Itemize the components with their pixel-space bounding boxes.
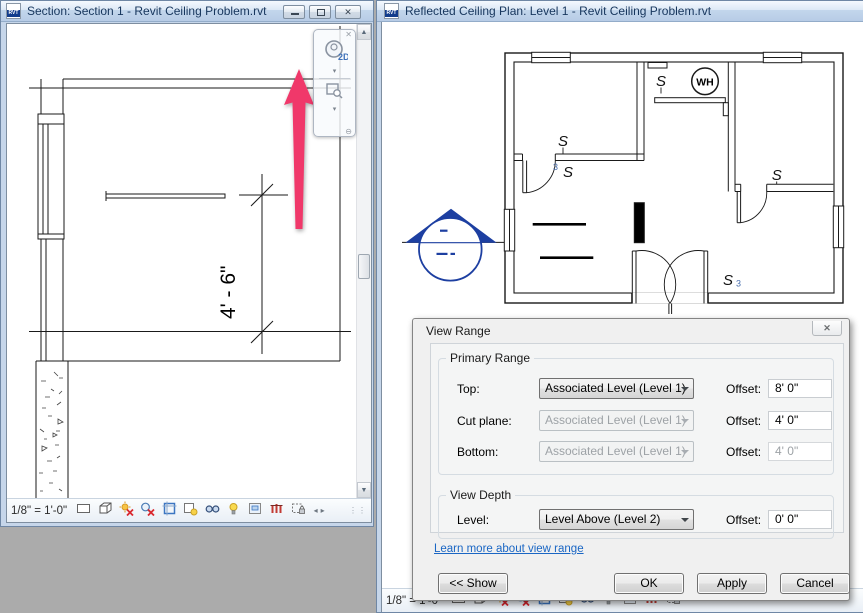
restore-icon bbox=[317, 9, 325, 16]
navigation-bar[interactable]: ✕ 2D ▾ ▾ ⊖ bbox=[313, 29, 356, 137]
apply-button[interactable]: Apply bbox=[697, 573, 767, 594]
desktop: RVT Section: Section 1 - Revit Ceiling P… bbox=[0, 0, 863, 613]
rvt-file-icon: RVT bbox=[384, 3, 399, 19]
section-window-detail[interactable] bbox=[38, 114, 64, 239]
fixture-line-1[interactable] bbox=[533, 223, 586, 226]
water-heater-label: WH bbox=[696, 77, 714, 89]
minimize-icon bbox=[291, 13, 299, 15]
vertical-scrollbar[interactable]: ▲ ▼ bbox=[356, 24, 371, 498]
worksharing-display-icon[interactable] bbox=[268, 500, 285, 517]
section-window-titlebar[interactable]: RVT Section: Section 1 - Revit Ceiling P… bbox=[1, 1, 373, 22]
view-depth-level-select[interactable]: Level Above (Level 2) bbox=[539, 509, 694, 530]
ok-button[interactable]: OK bbox=[614, 573, 684, 594]
top-offset-label: Offset: bbox=[726, 382, 761, 396]
zoom-menu-caret[interactable]: ▾ bbox=[314, 106, 355, 114]
switch-symbol: S bbox=[723, 272, 733, 289]
top-label: Top: bbox=[457, 382, 480, 396]
minimize-button[interactable] bbox=[283, 5, 305, 19]
show-button[interactable]: << Show bbox=[438, 573, 508, 594]
close-button[interactable]: ✕ bbox=[335, 5, 361, 19]
steering-wheel-menu-caret[interactable]: ▾ bbox=[314, 68, 355, 76]
detail-level-icon[interactable] bbox=[75, 500, 92, 517]
section-drawing[interactable]: 4' - 6" bbox=[7, 24, 356, 498]
view-control-icons bbox=[75, 500, 307, 521]
view-depth-offset-input[interactable]: 0' 0" bbox=[768, 510, 832, 529]
section-window-title: Section: Section 1 - Revit Ceiling Probl… bbox=[27, 4, 266, 18]
bottom-offset-input: 4' 0" bbox=[768, 442, 832, 461]
zoom-button[interactable] bbox=[314, 81, 355, 106]
scrollbar-thumb[interactable] bbox=[358, 254, 370, 279]
steering-wheel-button[interactable]: 2D bbox=[314, 39, 355, 68]
navbar-divider bbox=[319, 78, 350, 79]
switch-symbol: S bbox=[563, 164, 573, 181]
switch-symbol: S bbox=[558, 133, 568, 150]
bottom-label: Bottom: bbox=[457, 445, 498, 459]
section-window: RVT Section: Section 1 - Revit Ceiling P… bbox=[0, 0, 374, 527]
ceiling-plan-titlebar[interactable]: RVT Reflected Ceiling Plan: Level 1 - Re… bbox=[377, 1, 863, 22]
crop-region-icon[interactable] bbox=[161, 500, 178, 517]
level-label: Level: bbox=[457, 513, 489, 527]
cut-plane-level-select: Associated Level (Level 1) bbox=[539, 410, 694, 431]
show-crop-icon[interactable] bbox=[182, 500, 199, 517]
cut-plane-label: Cut plane: bbox=[457, 414, 512, 428]
primary-range-group: Primary Range Top: Associated Level (Lev… bbox=[438, 358, 834, 475]
top-level-select[interactable]: Associated Level (Level 1) bbox=[539, 378, 694, 399]
annotation-arrow bbox=[284, 69, 314, 229]
editable-only-lock-icon[interactable] bbox=[290, 500, 307, 517]
dimension-4ft6[interactable] bbox=[239, 174, 288, 354]
view-control-bar: 1/8" = 1'-0" ◂▸ ⋮⋮ bbox=[7, 498, 371, 522]
dialog-panel: Primary Range Top: Associated Level (Lev… bbox=[430, 343, 844, 533]
section-view-canvas: 4' - 6" ✕ 2D ▾ bbox=[6, 23, 372, 523]
top-offset-input[interactable]: 8' 0" bbox=[768, 379, 832, 398]
analytical-display-icon[interactable] bbox=[247, 500, 264, 517]
scale-label[interactable]: 1/8" = 1'-0" bbox=[11, 505, 67, 517]
rvt-file-icon: RVT bbox=[6, 3, 21, 19]
view-range-dialog: View Range ✕ Primary Range Top: Associat… bbox=[412, 318, 850, 601]
cut-plane-row: Cut plane: Associated Level (Level 1) Of… bbox=[439, 410, 833, 431]
visual-style-icon[interactable] bbox=[97, 500, 114, 517]
top-row: Top: Associated Level (Level 1) Offset: … bbox=[439, 378, 833, 399]
water-heater[interactable]: WH bbox=[692, 68, 719, 95]
dimension-text[interactable]: 4' - 6" bbox=[217, 266, 240, 319]
scroll-up-button[interactable]: ▲ bbox=[357, 24, 371, 40]
ceiling-section[interactable] bbox=[106, 191, 225, 201]
concrete-hatch bbox=[39, 372, 63, 491]
ceiling-plan-title: Reflected Ceiling Plan: Level 1 - Revit … bbox=[405, 4, 711, 18]
svg-text:3: 3 bbox=[553, 162, 558, 172]
cut-plane-offset-input[interactable]: 4' 0" bbox=[768, 411, 832, 430]
level-row: Level: Level Above (Level 2) Offset: 0' … bbox=[439, 509, 833, 530]
chevron-down-icon bbox=[681, 387, 689, 391]
chevron-down-icon bbox=[681, 419, 689, 423]
section-marker-circle bbox=[419, 218, 482, 281]
sun-shadows-off-icon[interactable] bbox=[118, 500, 135, 517]
dialog-close-button[interactable]: ✕ bbox=[812, 321, 842, 336]
reveal-hidden-icon[interactable] bbox=[225, 500, 242, 517]
view-depth-offset-label: Offset: bbox=[726, 513, 761, 527]
cut-plane-offset-label: Offset: bbox=[726, 414, 761, 428]
section-marker[interactable] bbox=[402, 209, 504, 281]
dialog-title: View Range bbox=[426, 324, 491, 338]
bottom-level-select: Associated Level (Level 1) bbox=[539, 441, 694, 462]
scroll-down-button[interactable]: ▼ bbox=[357, 482, 371, 498]
restore-button[interactable] bbox=[309, 5, 331, 19]
view-depth-label: View Depth bbox=[446, 488, 515, 502]
switch-symbol: S bbox=[656, 73, 666, 90]
bottom-offset-label: Offset: bbox=[726, 445, 761, 459]
steering-wheel-2d-label: 2D bbox=[338, 52, 348, 62]
chevron-down-icon bbox=[681, 518, 689, 522]
svg-text:3: 3 bbox=[736, 279, 741, 289]
pan-arrows[interactable]: ◂▸ bbox=[314, 506, 328, 515]
chevron-down-icon bbox=[681, 450, 689, 454]
render-off-icon[interactable] bbox=[139, 500, 156, 517]
bottom-row: Bottom: Associated Level (Level 1) Offse… bbox=[439, 441, 833, 462]
chimney-solid[interactable] bbox=[634, 203, 644, 243]
foundation-wall[interactable] bbox=[36, 361, 340, 498]
fixture-line-2[interactable] bbox=[540, 256, 593, 259]
resize-grip[interactable]: ⋮⋮ bbox=[349, 506, 367, 515]
cancel-button[interactable]: Cancel bbox=[780, 573, 850, 594]
navbar-collapse-icon[interactable]: ⊖ bbox=[345, 127, 352, 136]
primary-range-label: Primary Range bbox=[446, 351, 534, 365]
view-depth-group: View Depth Level: Level Above (Level 2) … bbox=[438, 495, 834, 539]
learn-more-link[interactable]: Learn more about view range bbox=[434, 543, 584, 555]
navbar-close-icon[interactable]: ✕ bbox=[345, 30, 352, 39]
temporary-hide-isolate-icon[interactable] bbox=[204, 500, 221, 517]
exterior-walls[interactable] bbox=[505, 53, 843, 303]
switch-symbol: S bbox=[772, 167, 782, 184]
